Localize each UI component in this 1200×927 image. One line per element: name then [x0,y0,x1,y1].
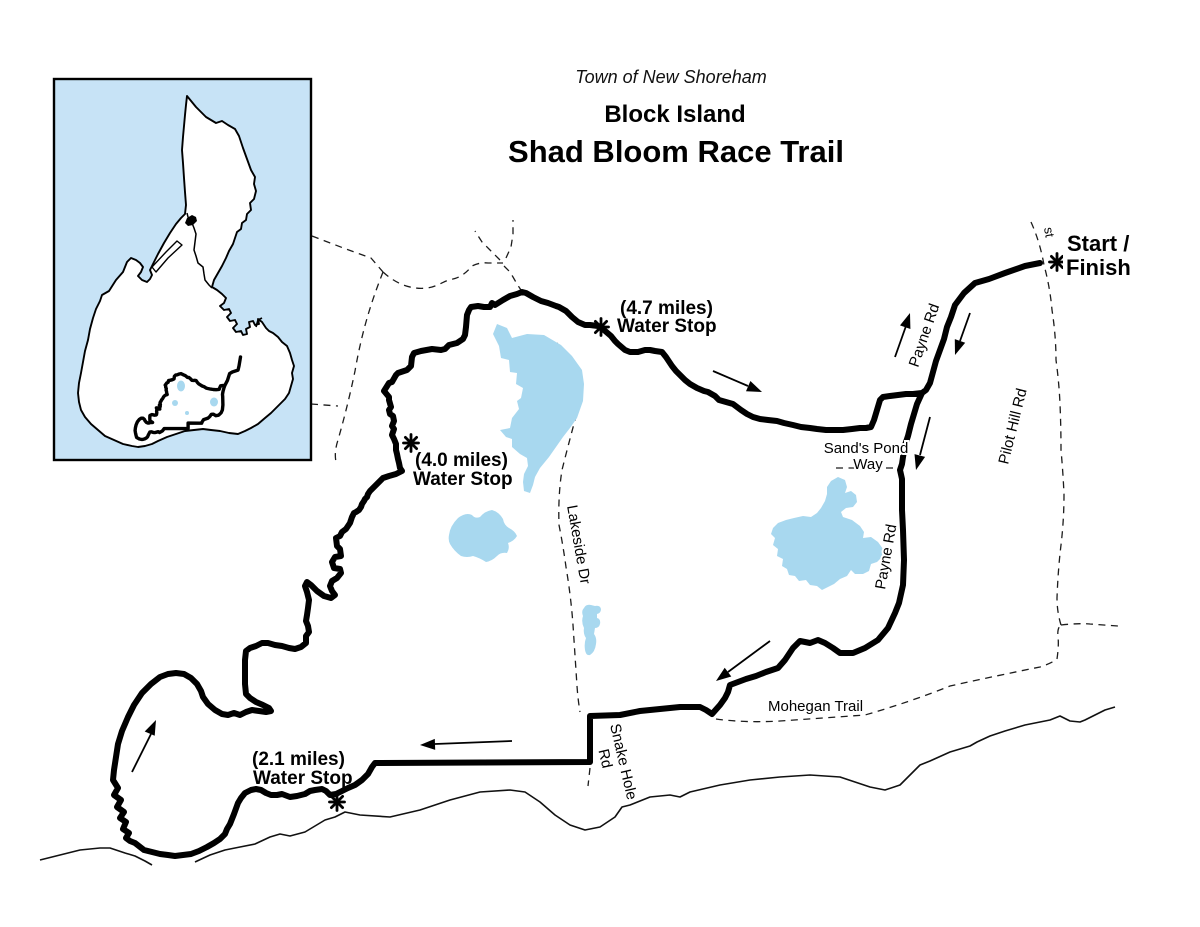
svg-text:Water Stop: Water Stop [253,768,353,789]
svg-text:Lakeside Dr: Lakeside Dr [563,504,594,586]
svg-text:Mohegan Trail: Mohegan Trail [768,698,863,715]
svg-text:Pilot Hill Rd: Pilot Hill Rd [995,387,1030,466]
svg-text:Water Stop: Water Stop [617,316,717,337]
svg-text:(4.0 miles): (4.0 miles) [415,450,508,471]
svg-text:Block Island: Block Island [604,101,745,128]
svg-text:Finish: Finish [1066,255,1131,280]
svg-text:Water Stop: Water Stop [413,469,513,490]
svg-text:(2.1 miles): (2.1 miles) [252,749,345,770]
svg-text:Rd: Rd [594,747,615,770]
svg-text:st: st [1041,226,1058,239]
svg-text:Town of New Shoreham: Town of New Shoreham [575,67,766,87]
svg-text:Start /: Start / [1067,231,1129,256]
svg-text:Sand's Pond: Sand's Pond [824,440,909,457]
svg-text:Shad Bloom Race Trail: Shad Bloom Race Trail [508,134,844,169]
svg-text:Way: Way [853,456,883,473]
